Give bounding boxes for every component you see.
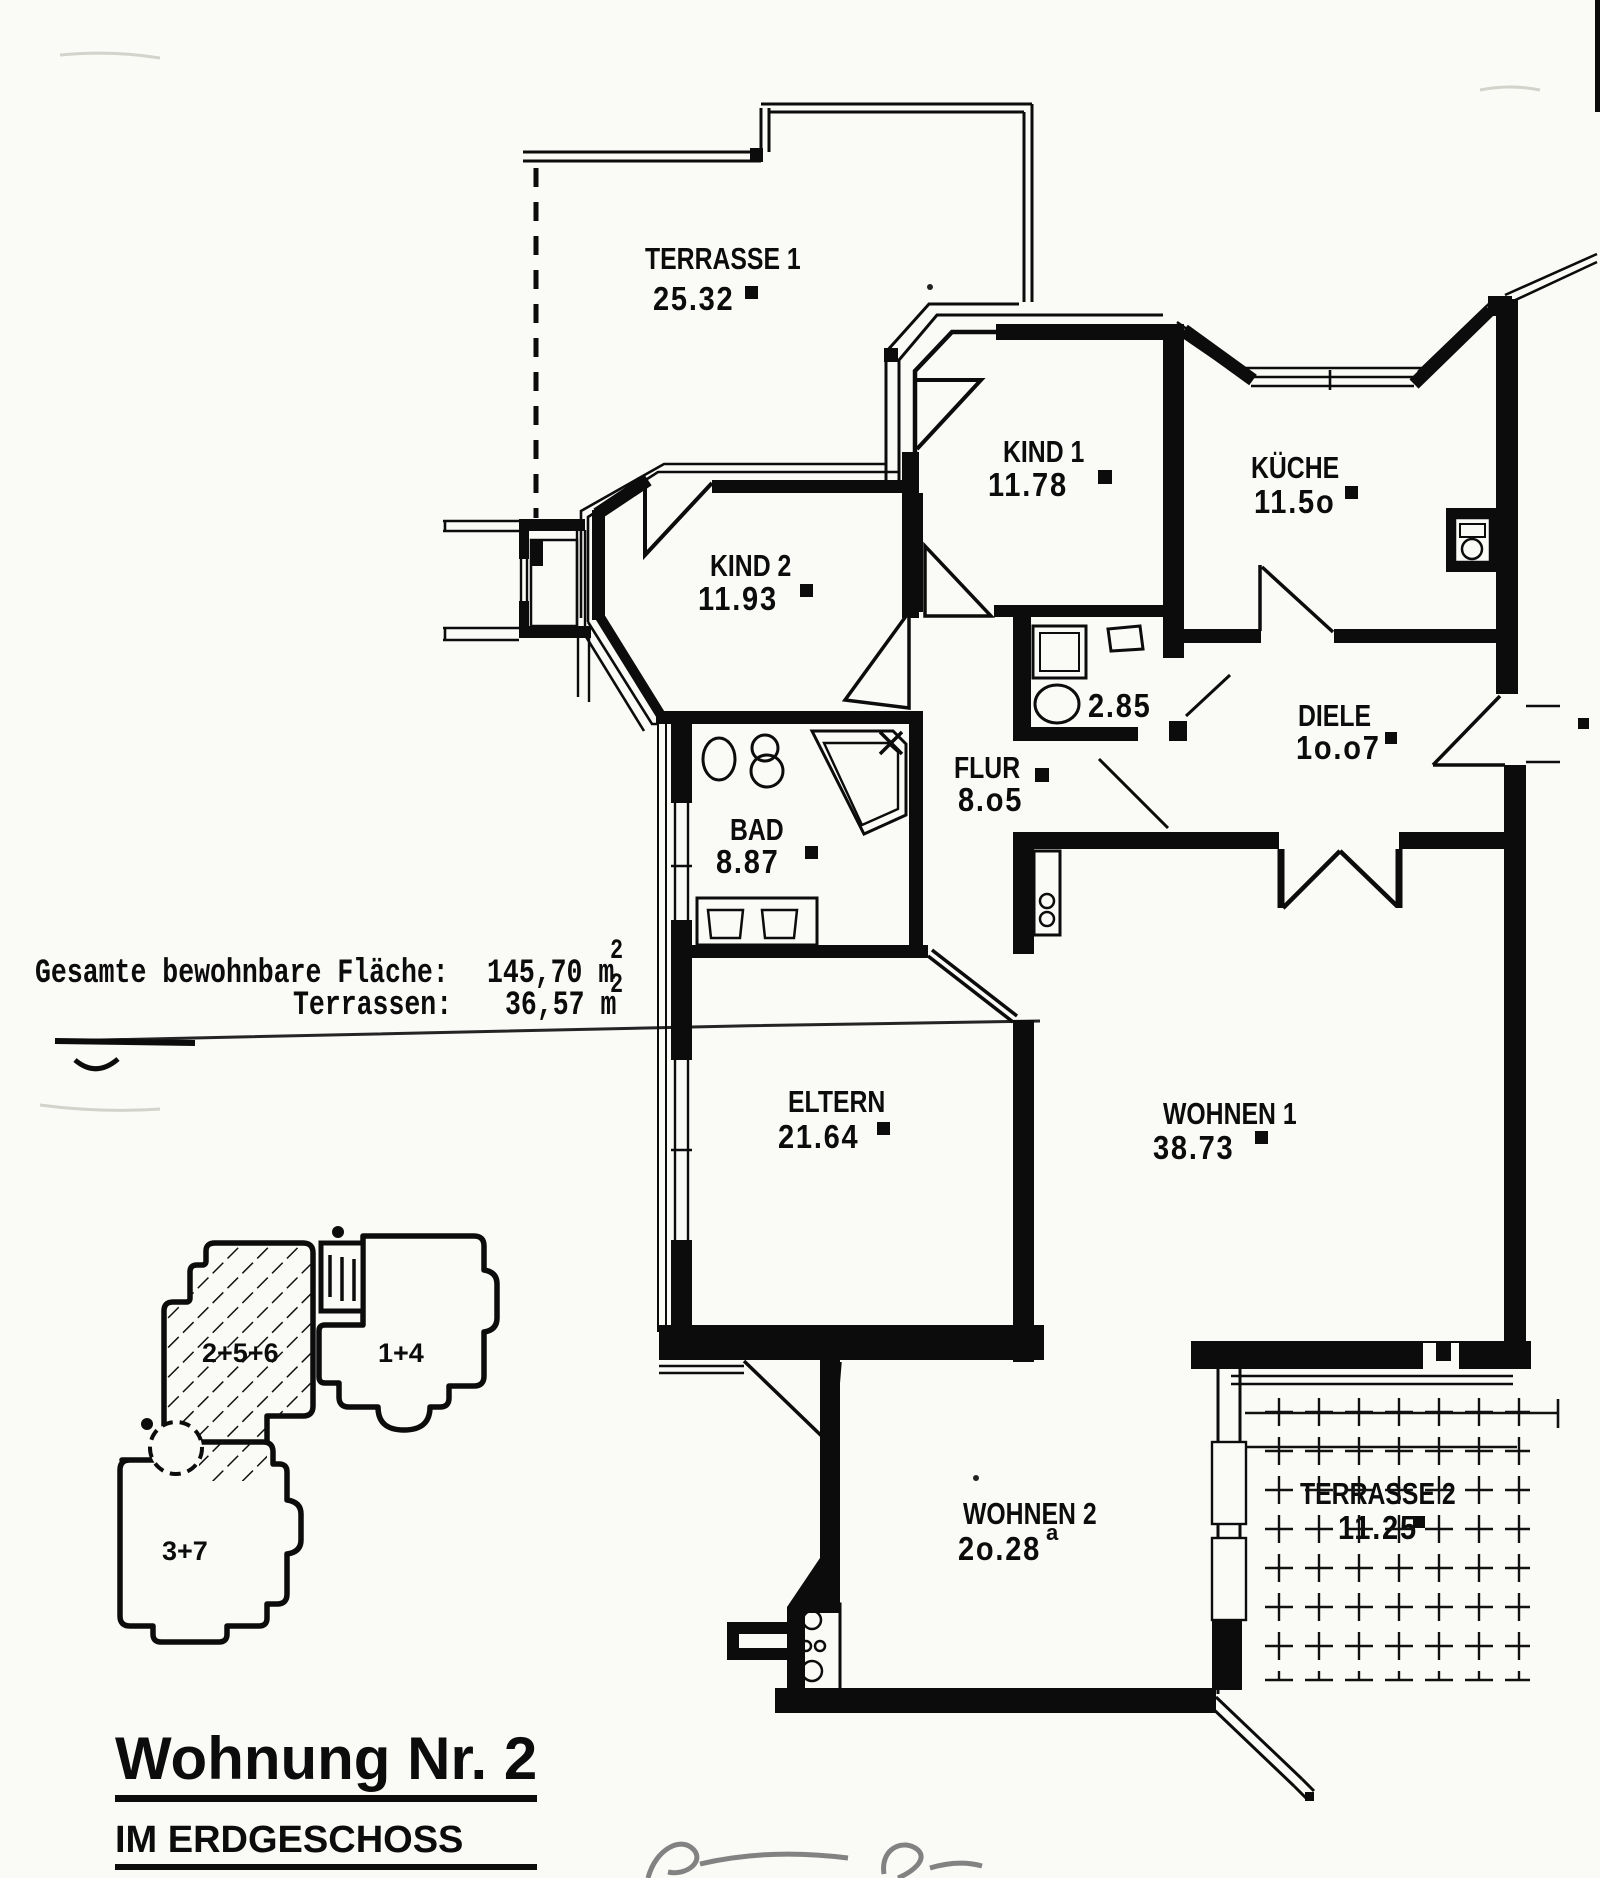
svg-text:8.o5: 8.o5 [958, 781, 1023, 818]
svg-text:2+5+6: 2+5+6 [202, 1338, 279, 1368]
svg-text:11.5o: 11.5o [1254, 483, 1335, 520]
svg-text:2: 2 [610, 969, 623, 1001]
svg-text:DIELE: DIELE [1298, 698, 1371, 732]
svg-text:KIND 1: KIND 1 [1003, 434, 1084, 468]
svg-text:ELTERN: ELTERN [788, 1084, 885, 1118]
svg-text:TERRASSE 1: TERRASSE 1 [645, 241, 801, 275]
svg-text:WOHNEN 2: WOHNEN 2 [963, 1496, 1097, 1530]
svg-text:WOHNEN 1: WOHNEN 1 [1163, 1096, 1297, 1130]
svg-text:1o.o7: 1o.o7 [1296, 729, 1381, 766]
svg-text:1+4: 1+4 [378, 1338, 424, 1368]
svg-text:Wohnung Nr. 2: Wohnung Nr. 2 [115, 1725, 537, 1792]
svg-text:3+7: 3+7 [162, 1536, 208, 1566]
svg-text:21.64: 21.64 [778, 1118, 859, 1155]
svg-text:BAD: BAD [730, 812, 784, 846]
svg-text:2: 2 [610, 935, 623, 967]
svg-text:38.73: 38.73 [1153, 1129, 1234, 1166]
svg-text:Terrassen:: Terrassen: [293, 987, 452, 1025]
svg-text:11.78: 11.78 [988, 466, 1068, 503]
svg-text:KÜCHE: KÜCHE [1251, 450, 1339, 484]
svg-text:TERRASSE 2: TERRASSE 2 [1300, 1476, 1456, 1510]
svg-text:IM ERDGESCHOSS: IM ERDGESCHOSS [115, 1819, 463, 1861]
svg-text:25.32: 25.32 [653, 280, 734, 317]
svg-text:36,57 m: 36,57 m [505, 987, 616, 1025]
svg-text:a: a [1046, 1520, 1059, 1545]
svg-text:11.93: 11.93 [698, 580, 778, 617]
svg-text:2.85: 2.85 [1088, 687, 1152, 724]
svg-text:2o.28: 2o.28 [958, 1530, 1041, 1567]
svg-text:FLUR: FLUR [954, 750, 1020, 784]
svg-text:8.87: 8.87 [716, 843, 780, 880]
svg-text:KIND 2: KIND 2 [710, 548, 791, 582]
